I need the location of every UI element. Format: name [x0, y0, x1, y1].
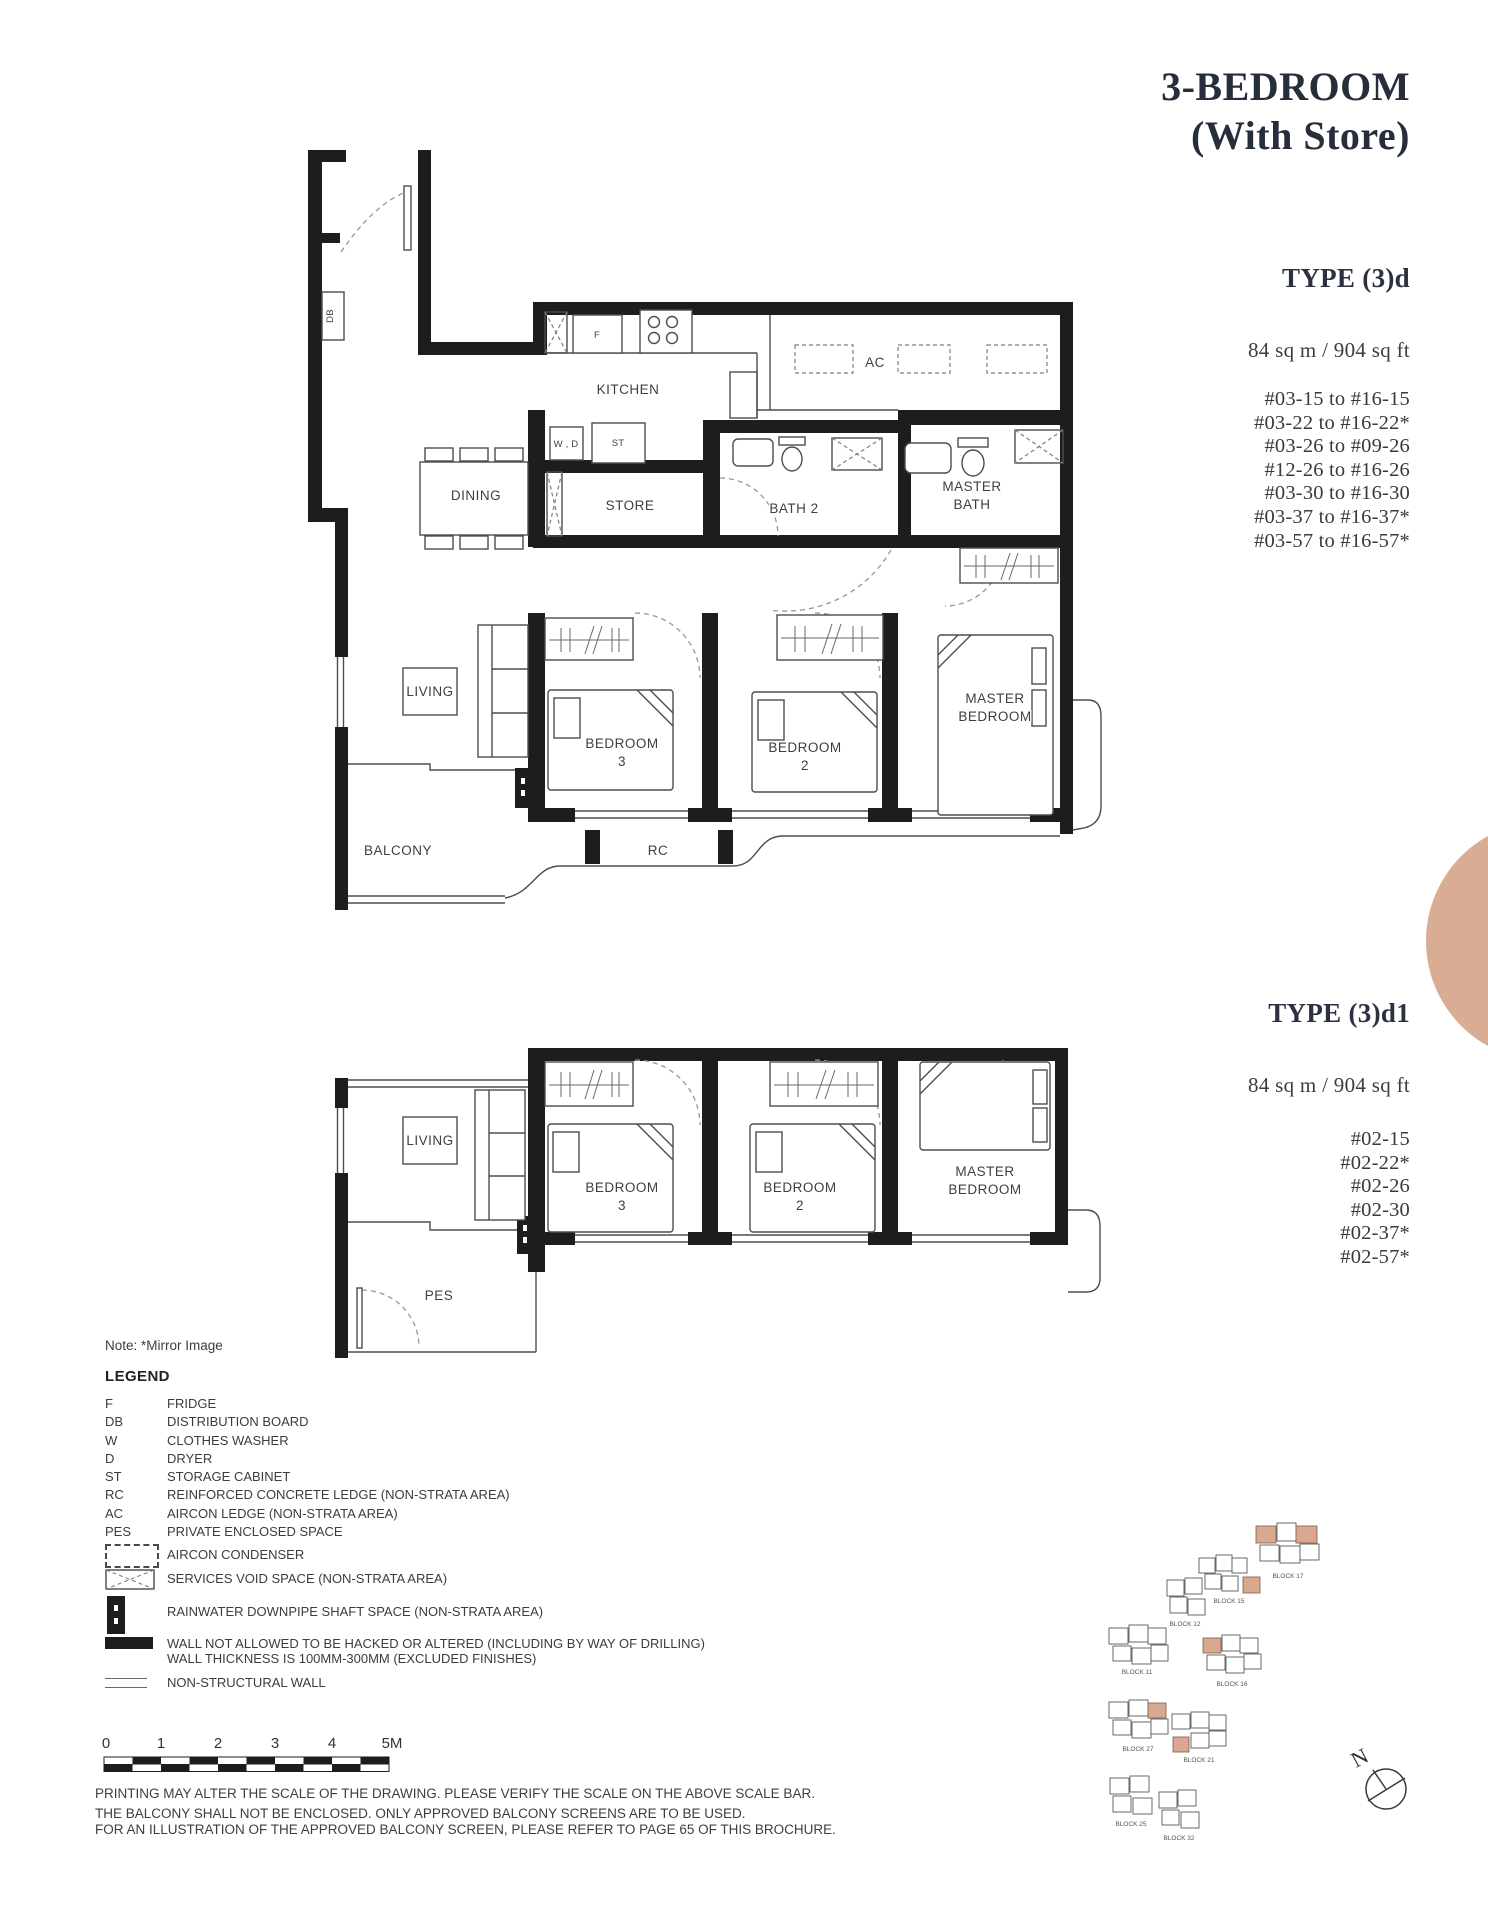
- bed-bedroom3-d1: [548, 1124, 673, 1232]
- site-block-27: BLOCK 27: [1109, 1700, 1168, 1753]
- legend-desc-line2: WALL THICKNESS IS 100MM-300MM (EXCLUDED …: [167, 1651, 536, 1666]
- footnote-balcony-2: FOR AN ILLUSTRATION OF THE APPROVED BALC…: [95, 1822, 836, 1837]
- label-bedroom3-d1-1: BEDROOM: [585, 1180, 658, 1195]
- dashed-elements: [341, 186, 1063, 678]
- type-3d-unit-list: #03-15 to #16-15 #03-22 to #16-22* #03-2…: [990, 388, 1410, 553]
- site-block-12: BLOCK 12: [1167, 1578, 1205, 1628]
- footnote-scale: PRINTING MAY ALTER THE SCALE OF THE DRAW…: [95, 1786, 815, 1801]
- unit-range: #02-15: [990, 1128, 1410, 1152]
- label-bedroom2-d1-1: BEDROOM: [763, 1180, 836, 1195]
- brochure-page: KITCHEN DINING STORE BATH 2 MASTER BATH …: [0, 0, 1488, 1928]
- unit-range: #02-37*: [990, 1222, 1410, 1246]
- unit-range: #02-26: [990, 1175, 1410, 1199]
- label-fridge: F: [594, 330, 600, 341]
- legend-abbr: ST: [105, 1469, 122, 1484]
- rainwater-shaft-d1: [517, 1216, 533, 1254]
- label-bath2: BATH 2: [769, 501, 818, 516]
- legend-abbr: W: [105, 1433, 117, 1448]
- site-block-25: BLOCK 25: [1110, 1776, 1152, 1828]
- scale-tick-3: 3: [271, 1735, 279, 1752]
- floor-plan-type-3d: KITCHEN DINING STORE BATH 2 MASTER BATH …: [308, 150, 1101, 910]
- label-bedroom2-1: BEDROOM: [768, 740, 841, 755]
- room-labels: KITCHEN DINING STORE BATH 2 MASTER BATH …: [325, 309, 1032, 858]
- label-store: STORE: [606, 498, 655, 513]
- furniture: [322, 292, 1058, 815]
- non-structural-wall-icon: [105, 1678, 147, 1688]
- scale-bar: 0 1 2 3 4 5M: [102, 1735, 403, 1772]
- legend-desc: CLOTHES WASHER: [167, 1433, 289, 1448]
- legend-desc: REINFORCED CONCRETE LEDGE (NON-STRATA AR…: [167, 1487, 510, 1502]
- site-block-21-label: BLOCK 21: [1183, 1757, 1214, 1764]
- label-bedroom2-2: 2: [801, 758, 809, 773]
- scale-tick-5: 5M: [382, 1735, 403, 1752]
- label-db: DB: [325, 309, 336, 323]
- unit-range: #02-22*: [990, 1152, 1410, 1176]
- type-3d1-heading: TYPE (3)d1: [990, 998, 1410, 1029]
- label-bedroom3-d1-2: 3: [618, 1198, 626, 1213]
- scale-tick-0: 0: [102, 1735, 110, 1752]
- label-balcony: BALCONY: [364, 843, 432, 858]
- rainwater-shaft: [515, 768, 532, 808]
- legend-desc: SERVICES VOID SPACE (NON-STRATA AREA): [167, 1571, 447, 1586]
- unit-range: #03-37 to #16-37*: [990, 506, 1410, 530]
- footnote-balcony-1: THE BALCONY SHALL NOT BE ENCLOSED. ONLY …: [95, 1806, 745, 1821]
- services-void-kitchen: [545, 312, 567, 353]
- scale-tick-1: 1: [157, 1735, 165, 1752]
- legend-abbr: AC: [105, 1506, 123, 1521]
- legend-desc: AIRCON CONDENSER: [167, 1547, 304, 1562]
- unit-range: #02-30: [990, 1199, 1410, 1223]
- label-kitchen: KITCHEN: [597, 382, 660, 397]
- type-3d-heading: TYPE (3)d: [990, 263, 1410, 294]
- label-bedroom3-2: 3: [618, 754, 626, 769]
- label-storage: ST: [612, 438, 625, 449]
- legend-abbr: PES: [105, 1524, 131, 1539]
- legend-desc: PRIVATE ENCLOSED SPACE: [167, 1524, 343, 1539]
- site-block-17: BLOCK 17: [1256, 1523, 1319, 1580]
- bed-master: [938, 635, 1053, 815]
- floor-plan-type-3d1: LIVING PES BEDROOM 3 BEDROOM 2 MASTER BE…: [335, 1048, 1100, 1358]
- label-master-bath-2: BATH: [953, 497, 990, 512]
- legend-desc: DISTRIBUTION BOARD: [167, 1414, 309, 1429]
- site-block-11: BLOCK 11: [1109, 1625, 1168, 1676]
- unit-range: #03-15 to #16-15: [990, 388, 1410, 412]
- label-rc: RC: [648, 843, 669, 858]
- rainwater-downpipe-icon: [105, 1596, 127, 1637]
- site-block-11-label: BLOCK 11: [1122, 1669, 1153, 1676]
- services-void-icon: [105, 1569, 155, 1593]
- site-block-12-label: BLOCK 12: [1169, 1621, 1200, 1628]
- label-dining: DINING: [451, 488, 501, 503]
- label-bedroom3-1: BEDROOM: [585, 736, 658, 751]
- label-washer-dryer: W , D: [554, 439, 579, 450]
- legend-abbr: RC: [105, 1487, 124, 1502]
- scale-tick-4: 4: [328, 1735, 336, 1752]
- legend-abbr: DB: [105, 1414, 123, 1429]
- page-title: 3-BEDROOM (With Store): [990, 62, 1410, 160]
- site-block-16: BLOCK 16: [1203, 1635, 1261, 1688]
- site-block-17-label: BLOCK 17: [1272, 1573, 1303, 1580]
- site-block-15: BLOCK 15: [1199, 1555, 1260, 1605]
- label-living-d1: LIVING: [406, 1133, 453, 1148]
- site-plan: BLOCK 17 BLOCK 15 BLOCK 12: [1109, 1523, 1319, 1842]
- type-3d1-unit-list: #02-15 #02-22* #02-26 #02-30 #02-37* #02…: [990, 1128, 1410, 1270]
- legend-heading: LEGEND: [105, 1368, 170, 1385]
- legend-desc: NON-STRUCTURAL WALL: [167, 1675, 326, 1690]
- unit-range: #03-22 to #16-22*: [990, 412, 1410, 436]
- label-bedroom2-d1-2: 2: [796, 1198, 804, 1213]
- scale-bar-segments: [104, 1757, 389, 1772]
- legend-desc: AIRCON LEDGE (NON-STRATA AREA): [167, 1506, 398, 1521]
- legend-abbr: F: [105, 1396, 113, 1411]
- legend-desc: FRIDGE: [167, 1396, 216, 1411]
- label-master-bed-1: MASTER: [965, 691, 1024, 706]
- site-block-15-label: BLOCK 15: [1213, 1598, 1244, 1605]
- legend-desc: DRYER: [167, 1451, 212, 1466]
- site-block-21: BLOCK 21: [1172, 1712, 1226, 1764]
- accent-circle: [1426, 821, 1488, 1061]
- unit-range: #03-57 to #16-57*: [990, 530, 1410, 554]
- services-void-store: [547, 472, 562, 536]
- unit-range: #03-30 to #16-30: [990, 482, 1410, 506]
- site-block-16-label: BLOCK 16: [1216, 1681, 1247, 1688]
- legend-desc: RAINWATER DOWNPIPE SHAFT SPACE (NON-STRA…: [167, 1604, 543, 1619]
- type-3d-area: 84 sq m / 904 sq ft: [990, 338, 1410, 363]
- legend-desc: STORAGE CABINET: [167, 1469, 290, 1484]
- site-block-32: BLOCK 32: [1159, 1790, 1199, 1842]
- label-pes: PES: [425, 1288, 454, 1303]
- page-title-line2: (With Store): [990, 111, 1410, 160]
- north-label: N: [1347, 1743, 1373, 1773]
- label-ac: AC: [865, 355, 885, 370]
- aircon-condenser-icon: [105, 1544, 159, 1568]
- legend-abbr: D: [105, 1451, 114, 1466]
- unit-range: #03-26 to #09-26: [990, 435, 1410, 459]
- label-living: LIVING: [406, 684, 453, 699]
- site-block-32-label: BLOCK 32: [1163, 1835, 1194, 1842]
- label-master-bed-2: BEDROOM: [958, 709, 1031, 724]
- site-block-25-label: BLOCK 25: [1115, 1821, 1146, 1828]
- mirror-image-note: Note: *Mirror Image: [105, 1338, 223, 1353]
- site-block-27-label: BLOCK 27: [1122, 1746, 1153, 1753]
- dashed-elements-d1: [357, 1060, 1003, 1348]
- north-arrow: N: [1347, 1743, 1406, 1809]
- legend-desc: WALL NOT ALLOWED TO BE HACKED OR ALTERED…: [167, 1636, 705, 1651]
- bed-bedroom2-d1: [750, 1124, 875, 1232]
- scale-tick-2: 2: [214, 1735, 222, 1752]
- unit-range: #02-57*: [990, 1246, 1410, 1270]
- structural-wall-icon: [105, 1637, 153, 1649]
- type-3d1-area: 84 sq m / 904 sq ft: [990, 1073, 1410, 1098]
- page-title-line1: 3-BEDROOM: [990, 62, 1410, 111]
- services-void-bath2: [832, 438, 882, 470]
- unit-range: #12-26 to #16-26: [990, 459, 1410, 483]
